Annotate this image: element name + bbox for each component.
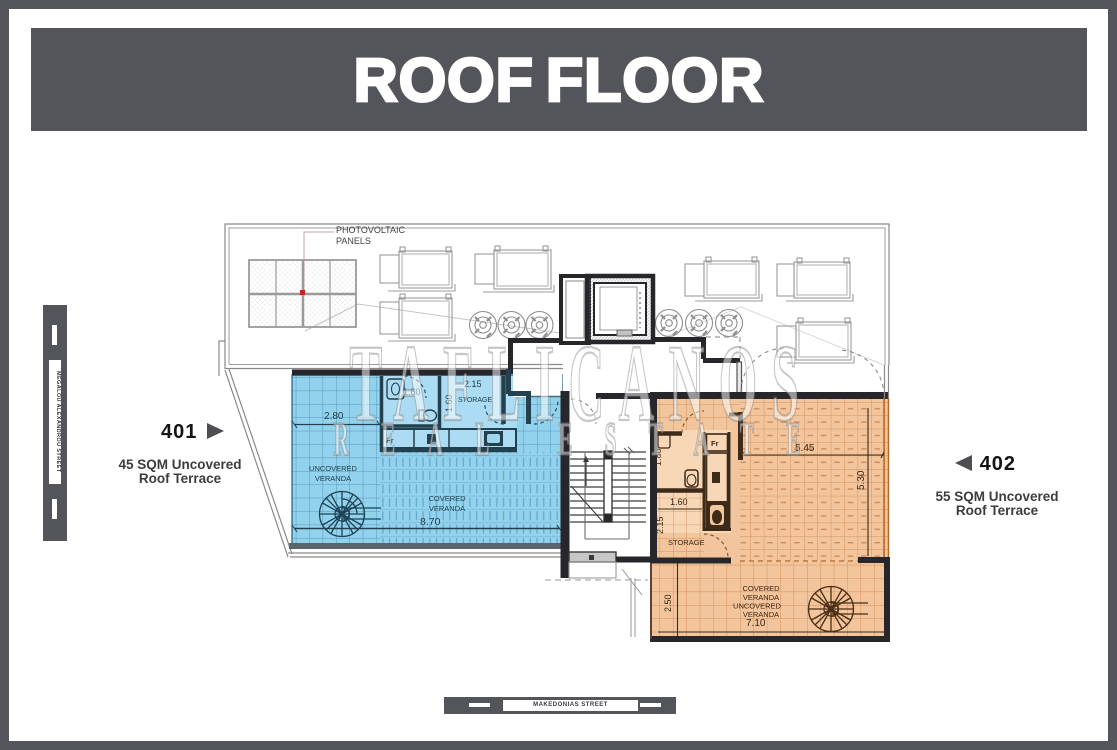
svg-text:COVERED: COVERED	[428, 494, 466, 503]
svg-text:STORAGE: STORAGE	[668, 538, 705, 547]
svg-text:COVERED: COVERED	[742, 584, 780, 593]
svg-text:7.10: 7.10	[746, 618, 766, 629]
svg-text:REAL ESTATE: REAL ESTATE	[334, 412, 833, 465]
svg-text:2.15: 2.15	[655, 516, 665, 534]
svg-text:1.60: 1.60	[670, 497, 688, 507]
svg-text:8.70: 8.70	[420, 516, 441, 528]
svg-text:VERANDA: VERANDA	[429, 504, 465, 513]
svg-text:PANELS: PANELS	[336, 236, 371, 246]
svg-text:5.30: 5.30	[856, 470, 867, 490]
svg-text:PHOTOVOLTAIC: PHOTOVOLTAIC	[336, 225, 406, 235]
svg-text:VERANDA: VERANDA	[315, 474, 351, 483]
svg-text:2.50: 2.50	[663, 594, 673, 612]
